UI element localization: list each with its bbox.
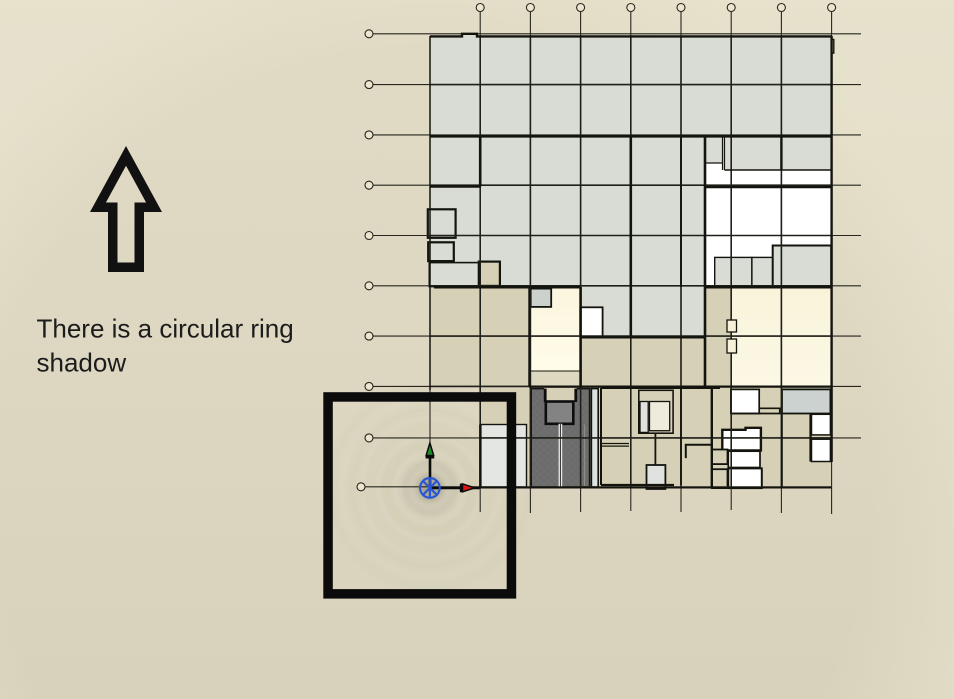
svg-text:There is a circular ring: There is a circular ring [37, 314, 294, 344]
svg-text:shadow: shadow [37, 348, 127, 378]
